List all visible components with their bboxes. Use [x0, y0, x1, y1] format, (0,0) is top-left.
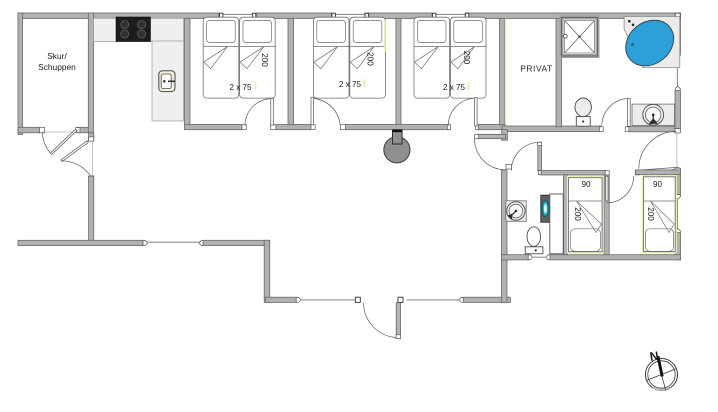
svg-text:PRIVAT: PRIVAT: [520, 64, 553, 74]
svg-text:2 x 75: 2 x 75: [229, 83, 252, 92]
svg-text:200: 200: [462, 51, 471, 65]
svg-text:90: 90: [581, 180, 591, 189]
svg-text:Skur/: Skur/: [47, 51, 67, 61]
svg-text:200: 200: [573, 207, 582, 221]
svg-text:90: 90: [653, 180, 663, 189]
svg-text:200: 200: [646, 207, 655, 221]
svg-text:200: 200: [366, 52, 375, 66]
svg-text:2 x 75: 2 x 75: [339, 80, 362, 89]
svg-text:200: 200: [260, 53, 269, 67]
svg-text:Schuppen: Schuppen: [38, 62, 76, 72]
svg-text:2 x 75: 2 x 75: [443, 83, 466, 92]
svg-text:N: N: [649, 349, 660, 364]
